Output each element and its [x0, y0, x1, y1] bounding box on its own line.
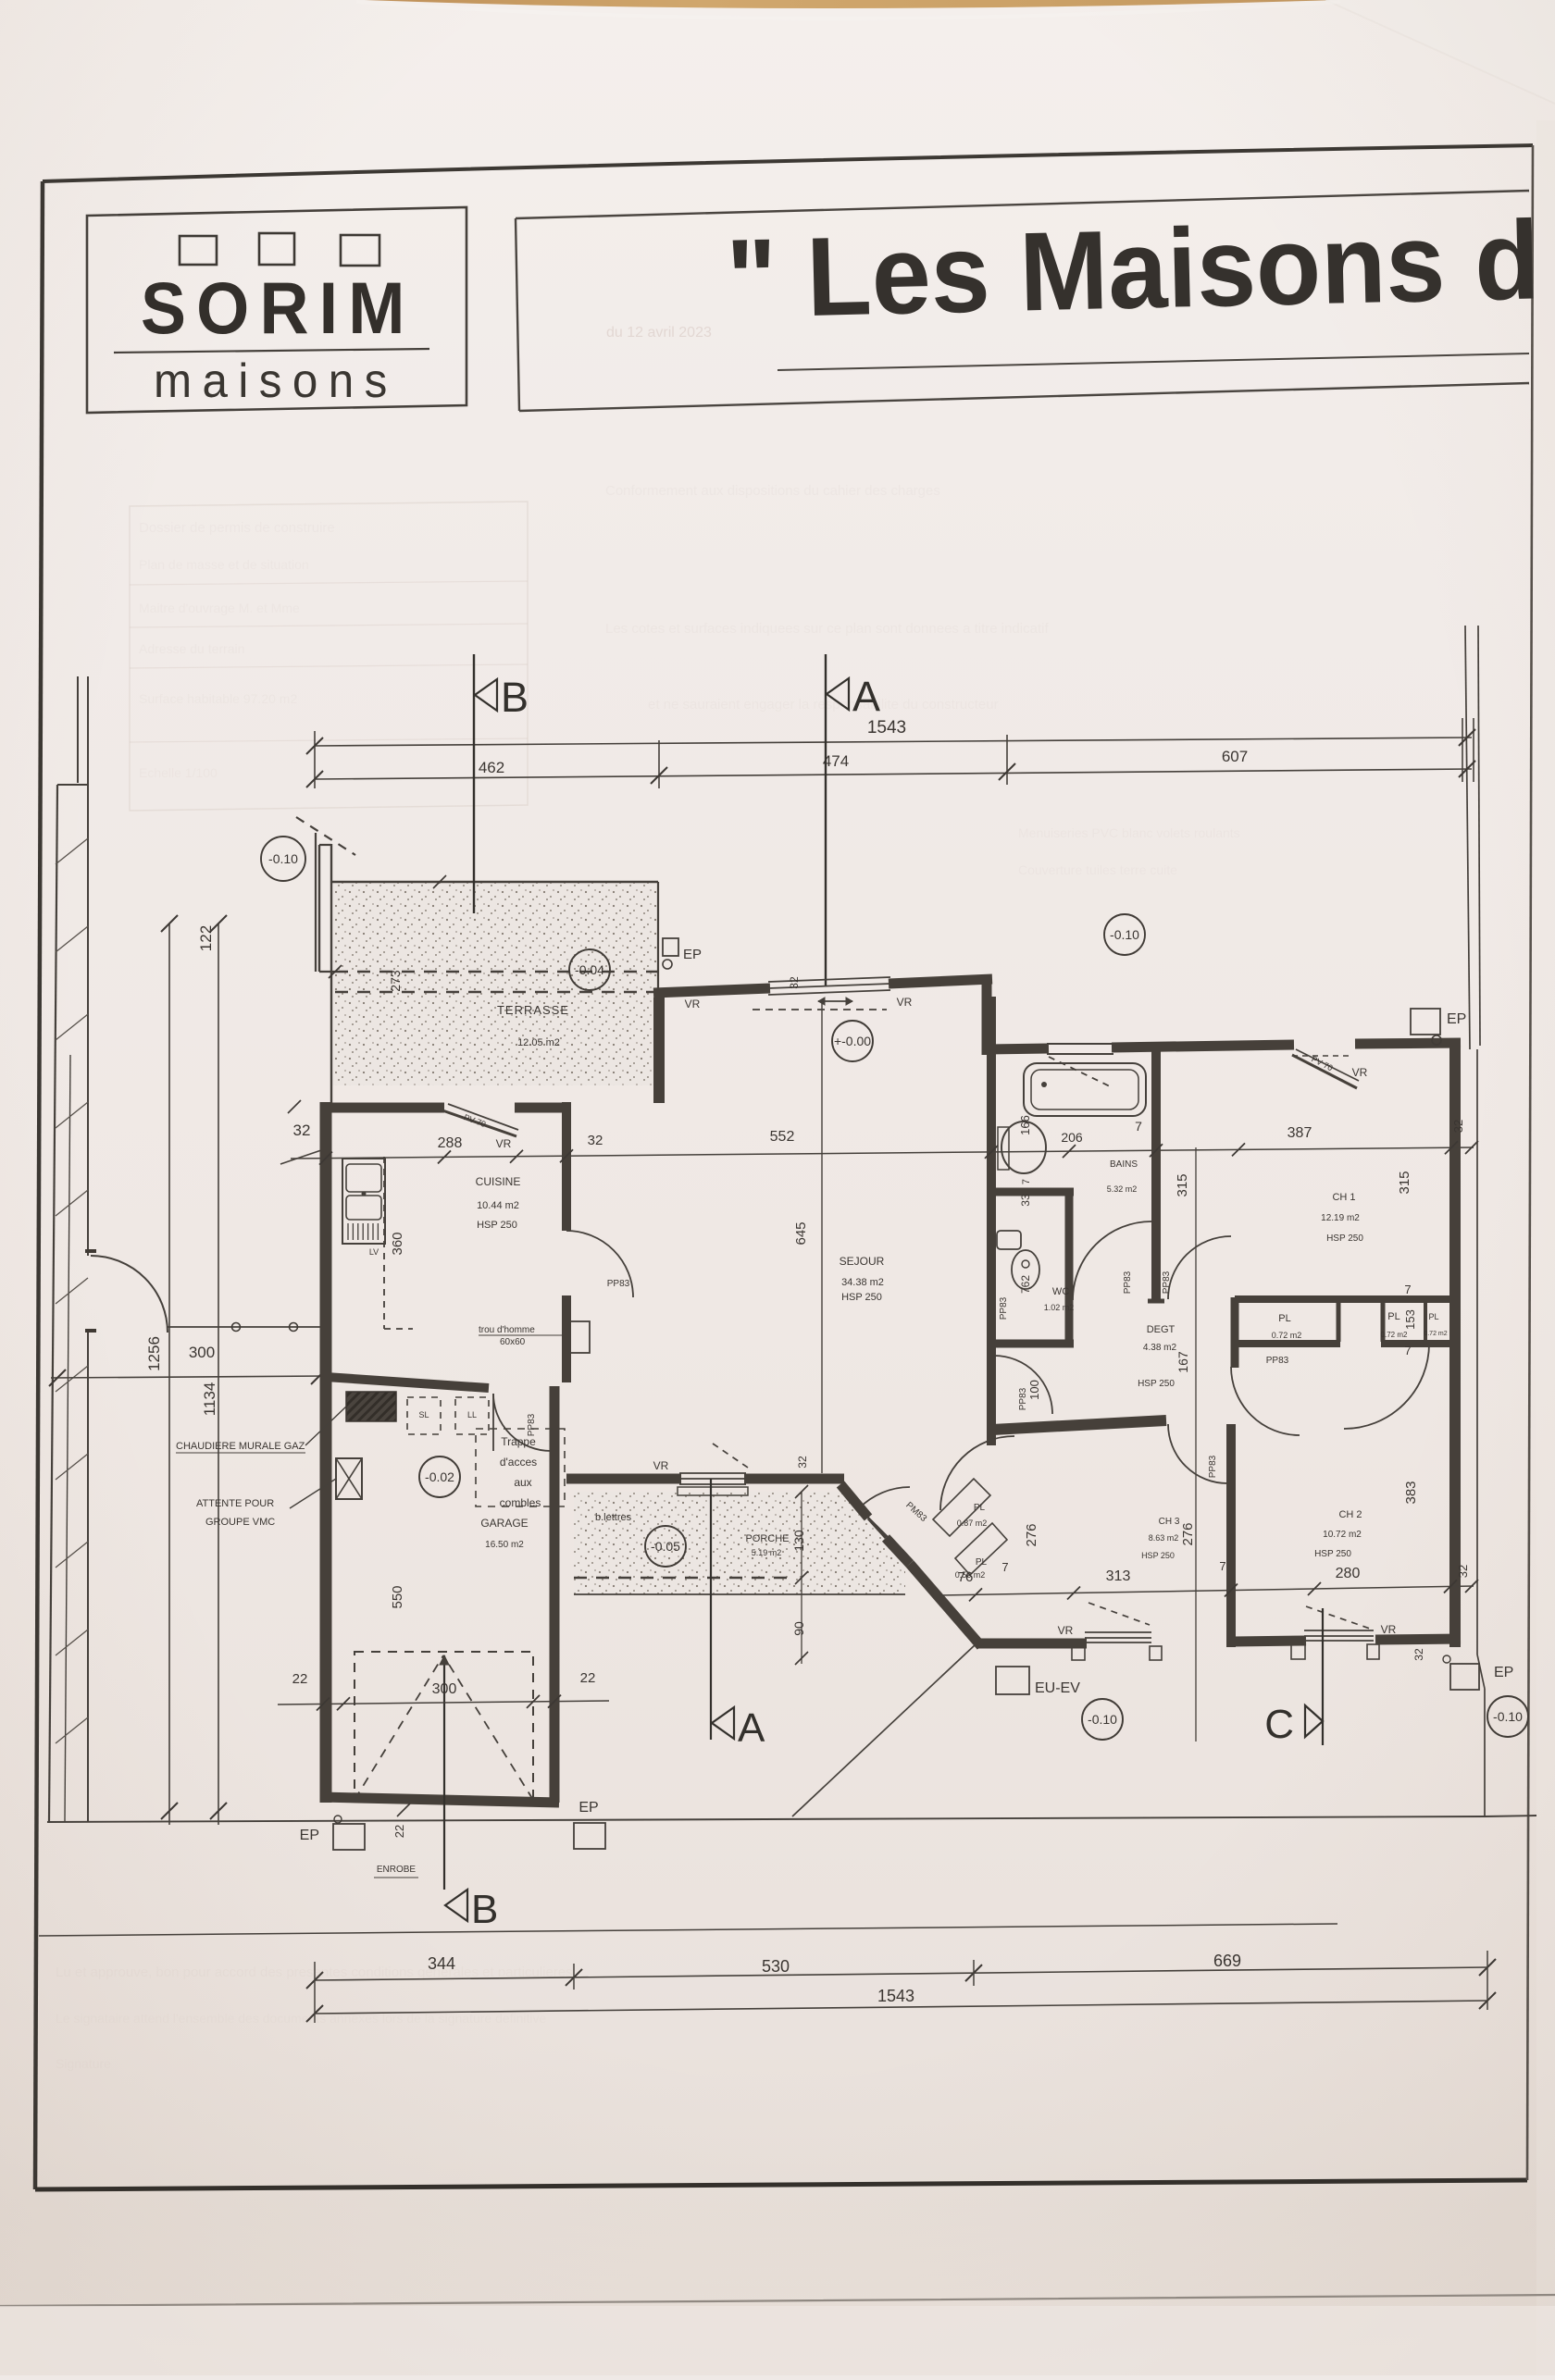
svg-text:Surface habitable 97.20 m2: Surface habitable 97.20 m2	[139, 691, 297, 706]
svg-text:C: C	[1264, 1702, 1294, 1747]
svg-text:300: 300	[432, 1681, 457, 1697]
svg-text:HSP 250: HSP 250	[1138, 1379, 1175, 1389]
svg-text:1543: 1543	[867, 718, 906, 738]
svg-text:" Les Maisons d: " Les Maisons d	[725, 198, 1540, 342]
svg-text:7: 7	[1404, 1344, 1411, 1357]
svg-text:Couverture tuiles terre cuite: Couverture tuiles terre cuite	[1018, 862, 1177, 877]
svg-text:CUISINE: CUISINE	[476, 1175, 521, 1188]
svg-text:206: 206	[1061, 1130, 1083, 1145]
svg-text:1543: 1543	[877, 1987, 914, 2005]
svg-text:VR: VR	[653, 1459, 669, 1472]
svg-text:32: 32	[1412, 1648, 1425, 1661]
svg-text:360: 360	[390, 1232, 405, 1255]
svg-text:607: 607	[1222, 748, 1248, 765]
svg-text:BAINS: BAINS	[1110, 1159, 1138, 1170]
svg-text:HSP 250: HSP 250	[1326, 1233, 1363, 1244]
svg-text:PP83: PP83	[607, 1279, 630, 1289]
svg-text:PL: PL	[1278, 1313, 1290, 1324]
svg-text:combles: combles	[500, 1496, 541, 1509]
svg-text:10.72 m2: 10.72 m2	[1323, 1530, 1362, 1540]
svg-text:5.19 m2: 5.19 m2	[752, 1548, 782, 1557]
svg-text:530: 530	[762, 1957, 790, 1976]
svg-text:153: 153	[1403, 1309, 1417, 1330]
svg-text:0.87 m2: 0.87 m2	[957, 1518, 988, 1528]
svg-text:ENROBE: ENROBE	[377, 1865, 417, 1875]
svg-text:HSP 250: HSP 250	[1314, 1549, 1351, 1559]
svg-text:22: 22	[292, 1671, 308, 1687]
svg-text:313: 313	[1106, 1568, 1131, 1584]
svg-text:CH 2: CH 2	[1338, 1509, 1362, 1520]
svg-text:Le signataire attend l'ensembl: Le signataire attend l'ensemble des docu…	[56, 2011, 547, 2026]
svg-text:WC: WC	[1052, 1286, 1069, 1297]
svg-text:HSP 250: HSP 250	[1141, 1551, 1175, 1560]
svg-text:EP: EP	[683, 947, 702, 962]
svg-text:LL: LL	[467, 1410, 477, 1419]
svg-text:CHAUDIERE MURALE GAZ: CHAUDIERE MURALE GAZ	[176, 1441, 305, 1452]
svg-text:EP: EP	[578, 1800, 598, 1816]
svg-text:PL: PL	[1428, 1312, 1438, 1321]
svg-text:SEJOUR: SEJOUR	[840, 1255, 885, 1268]
svg-text:DEGT: DEGT	[1147, 1324, 1176, 1335]
svg-text:PP83: PP83	[527, 1413, 537, 1436]
svg-text:0.72 m2: 0.72 m2	[1381, 1331, 1408, 1339]
svg-text:32: 32	[788, 976, 801, 989]
svg-text:EU-EV: EU-EV	[1035, 1680, 1080, 1696]
svg-text:ATTENTE POUR: ATTENTE POUR	[196, 1498, 274, 1509]
svg-text:552: 552	[770, 1129, 795, 1145]
svg-text:130: 130	[791, 1530, 806, 1552]
svg-text:-0.02: -0.02	[425, 1469, 454, 1484]
svg-text:A: A	[852, 673, 880, 720]
svg-text:TERRASSE: TERRASSE	[497, 1003, 569, 1017]
svg-text:12.05 m2: 12.05 m2	[517, 1037, 560, 1048]
svg-text:PL: PL	[974, 1503, 986, 1513]
svg-text:EP: EP	[1494, 1665, 1513, 1680]
svg-text:VR: VR	[1381, 1623, 1397, 1636]
svg-text:Adresse du terrain: Adresse du terrain	[139, 641, 244, 656]
svg-text:PORCHE: PORCHE	[745, 1533, 789, 1544]
svg-text:PL: PL	[976, 1557, 988, 1568]
svg-text:et ne sauraient engager la res: et ne sauraient engager la responsabilit…	[648, 697, 999, 713]
svg-text:SORIM: SORIM	[141, 268, 416, 350]
svg-text:300: 300	[189, 1344, 215, 1361]
svg-text:B: B	[471, 1887, 498, 1932]
svg-text:166: 166	[1018, 1115, 1032, 1135]
svg-text:76: 76	[958, 1569, 974, 1585]
svg-text:EP: EP	[1447, 1011, 1466, 1027]
svg-text:GROUPE VMC: GROUPE VMC	[205, 1517, 275, 1528]
svg-text:22: 22	[392, 1825, 406, 1838]
svg-text:Signature: Signature	[56, 2056, 111, 2071]
svg-text:du 12 avril 2023: du 12 avril 2023	[606, 325, 712, 341]
svg-text:22: 22	[580, 1670, 596, 1686]
svg-text:Conformement aux dispositions: Conformement aux dispositions du cahier …	[605, 483, 940, 499]
svg-text:maisons: maisons	[154, 353, 398, 407]
svg-text:0.72 m2: 0.72 m2	[1424, 1331, 1447, 1337]
svg-text:VR: VR	[685, 998, 701, 1010]
svg-text:7: 7	[1404, 1283, 1411, 1296]
svg-text:122: 122	[197, 925, 215, 951]
svg-text:1256: 1256	[145, 1336, 163, 1371]
svg-text:VR: VR	[496, 1137, 512, 1150]
svg-text:10.44 m2: 10.44 m2	[477, 1200, 519, 1211]
svg-text:PP83: PP83	[1266, 1356, 1289, 1366]
svg-text:-0.10: -0.10	[1110, 927, 1139, 942]
svg-text:4.38 m2: 4.38 m2	[1143, 1343, 1177, 1353]
svg-text:32: 32	[588, 1133, 603, 1148]
svg-text:PP83: PP83	[1208, 1455, 1218, 1478]
svg-text:GARAGE: GARAGE	[480, 1517, 528, 1530]
svg-text:60x60: 60x60	[500, 1337, 526, 1347]
svg-text:VR: VR	[1352, 1066, 1368, 1079]
svg-text:VR: VR	[897, 996, 913, 1009]
svg-text:645: 645	[793, 1221, 809, 1245]
svg-text:PP83: PP83	[1162, 1271, 1172, 1294]
svg-text:Dossier de permis de construir: Dossier de permis de construire	[139, 520, 335, 536]
svg-text:462: 462	[479, 759, 504, 776]
svg-text:7: 7	[1001, 1560, 1008, 1574]
svg-text:383: 383	[1403, 1481, 1419, 1504]
svg-text:-0.05: -0.05	[651, 1539, 680, 1554]
svg-text:167: 167	[1176, 1351, 1190, 1373]
svg-text:32: 32	[1456, 1565, 1470, 1578]
svg-text:32: 32	[1451, 1120, 1465, 1133]
svg-text:A: A	[738, 1705, 765, 1751]
svg-text:Les cotes et surfaces indiquee: Les cotes et surfaces indiquees sur ce p…	[605, 621, 1049, 637]
svg-text:trou d'homme: trou d'homme	[479, 1325, 535, 1335]
svg-text:PP83: PP83	[1123, 1271, 1133, 1294]
svg-text:315: 315	[1397, 1171, 1412, 1194]
svg-text:aux: aux	[514, 1476, 531, 1489]
svg-text:7: 7	[1219, 1559, 1225, 1573]
svg-text:550: 550	[390, 1585, 405, 1608]
svg-text:Plan de masse et de situation: Plan de masse et de situation	[139, 557, 309, 572]
svg-text:-0.04: -0.04	[575, 962, 604, 977]
svg-text:CH 3: CH 3	[1159, 1517, 1180, 1527]
svg-text:16.50 m2: 16.50 m2	[485, 1540, 524, 1550]
svg-text:315: 315	[1175, 1173, 1190, 1196]
svg-text:280: 280	[1336, 1566, 1361, 1581]
svg-text:Maitre d'ouvrage M. et Mme: Maitre d'ouvrage M. et Mme	[139, 601, 300, 615]
svg-text:1134: 1134	[201, 1382, 218, 1417]
svg-text:276: 276	[1024, 1523, 1039, 1546]
svg-text:32: 32	[796, 1456, 809, 1469]
svg-text:b.lettres: b.lettres	[595, 1512, 632, 1523]
svg-text:PL: PL	[1387, 1311, 1399, 1322]
svg-text:387: 387	[1288, 1125, 1312, 1141]
svg-text:d'acces: d'acces	[500, 1456, 537, 1469]
svg-text:+-0.00: +-0.00	[834, 1034, 871, 1048]
svg-text:32: 32	[293, 1122, 311, 1139]
svg-text:5.32 m2: 5.32 m2	[1107, 1184, 1138, 1194]
svg-text:EP: EP	[300, 1828, 319, 1843]
svg-text:Lu et approuve, bon pour accor: Lu et approuve, bon pour accord des pres…	[56, 1965, 573, 1980]
svg-text:8.63 m2: 8.63 m2	[1149, 1533, 1179, 1543]
svg-text:LV: LV	[369, 1247, 379, 1257]
svg-text:CH 1: CH 1	[1332, 1192, 1355, 1203]
svg-text:-0.10: -0.10	[268, 851, 298, 866]
svg-text:276: 276	[1180, 1522, 1196, 1545]
svg-text:-0.10: -0.10	[1493, 1709, 1523, 1724]
svg-text:1.02 m2: 1.02 m2	[1044, 1303, 1075, 1312]
svg-text:273: 273	[388, 970, 403, 992]
svg-text:Echelle 1/100: Echelle 1/100	[139, 765, 218, 780]
svg-text:7: 7	[1021, 1179, 1032, 1184]
svg-text:100: 100	[1027, 1380, 1041, 1400]
svg-text:33: 33	[1019, 1194, 1032, 1207]
svg-text:HSP 250: HSP 250	[477, 1220, 517, 1231]
svg-text:90: 90	[791, 1621, 806, 1636]
svg-text:34.38 m2: 34.38 m2	[841, 1277, 884, 1288]
svg-text:SL: SL	[418, 1410, 429, 1419]
svg-text:12.19 m2: 12.19 m2	[1321, 1213, 1360, 1223]
svg-text:762: 762	[1019, 1275, 1032, 1294]
svg-text:PP83: PP83	[999, 1296, 1009, 1320]
svg-text:0.72 m2: 0.72 m2	[1272, 1331, 1302, 1340]
svg-text:VR: VR	[1058, 1624, 1074, 1637]
svg-text:B: B	[501, 674, 529, 721]
svg-text:-0.10: -0.10	[1088, 1712, 1117, 1727]
svg-text:7: 7	[1135, 1119, 1142, 1134]
svg-text:288: 288	[438, 1135, 463, 1151]
svg-text:HSP 250: HSP 250	[841, 1292, 882, 1303]
svg-text:Menuiseries PVC blanc volets: Menuiseries PVC blanc volets roulants	[1018, 825, 1240, 840]
svg-text:669: 669	[1213, 1952, 1241, 1970]
